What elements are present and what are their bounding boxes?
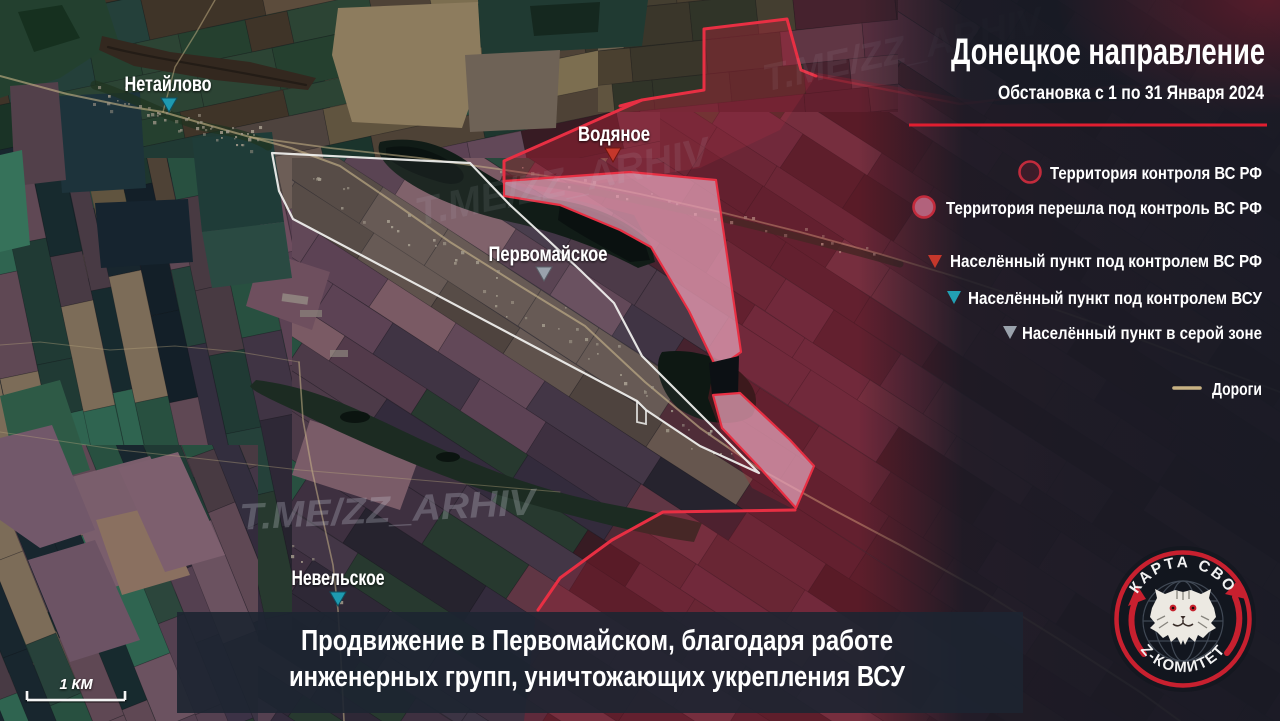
svg-text:Населённый пункт под контролем: Населённый пункт под контролем ВС РФ (950, 251, 1262, 271)
svg-text:Территория контроля ВС РФ: Территория контроля ВС РФ (1050, 163, 1262, 183)
svg-text:Населённый пункт в серой зоне: Населённый пункт в серой зоне (1022, 323, 1262, 343)
svg-text:Территория перешла под контрол: Территория перешла под контроль ВС РФ (946, 198, 1262, 218)
svg-text:Первомайское: Первомайское (489, 242, 608, 266)
svg-text:Донецкое направление: Донецкое направление (951, 31, 1265, 72)
svg-text:1 КМ: 1 КМ (59, 677, 93, 693)
svg-text:Обстановка с 1 по 31 Января 20: Обстановка с 1 по 31 Января 2024 (998, 82, 1264, 104)
svg-text:Нетайлово: Нетайлово (125, 73, 212, 96)
svg-text:Продвижение в Первомайском, бл: Продвижение в Первомайском, благодаря ра… (301, 625, 893, 657)
svg-text:Дороги: Дороги (1212, 379, 1262, 399)
svg-text:инженерных групп, уничтожающих: инженерных групп, уничтожающих укреплени… (289, 661, 905, 693)
svg-text:Водяное: Водяное (578, 123, 650, 146)
svg-text:Населённый пункт под контролем: Населённый пункт под контролем ВСУ (968, 288, 1263, 308)
svg-text:Невельское: Невельское (292, 567, 385, 590)
